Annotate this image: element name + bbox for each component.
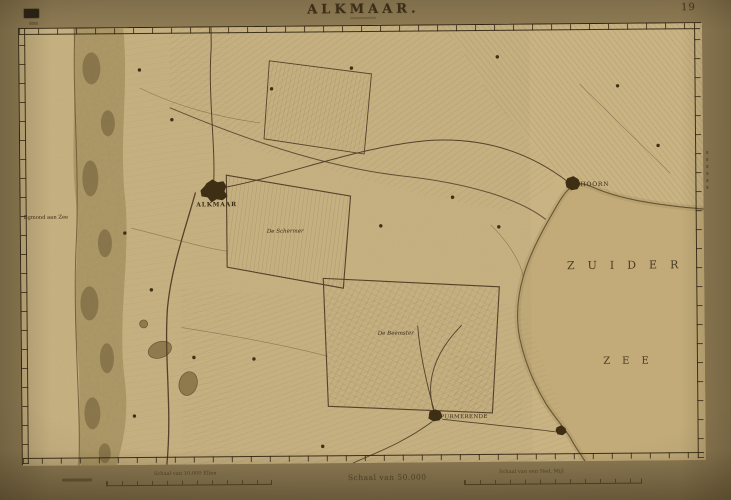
sheet-number: 19 [681, 2, 696, 13]
schermer-label: De Schermer [266, 229, 304, 235]
margin-marks [706, 147, 708, 189]
subtitle-smudge [350, 17, 376, 19]
alkmaar-label: ALKMAAR [195, 201, 237, 208]
map-sheet: ALKMAAR. 19 [0, 0, 731, 500]
map-drawing: ALKMAAR HOORN PURMERENDE Egmond aan Zee … [19, 23, 706, 466]
scale-label-right: Schaal van een Ned. Mijl [499, 468, 564, 475]
scale-bar-right [464, 479, 642, 486]
egmond-label: Egmond aan Zee [24, 215, 68, 221]
purmerende-label: PURMERENDE [440, 414, 487, 420]
illegible-footnote [62, 478, 92, 481]
beemster-label: De Beemster [377, 331, 415, 337]
scale-label-left: Schaal van 10.000 Ellen [154, 470, 217, 476]
zuiderzee-label-line1: ZUIDER [567, 258, 691, 272]
map-frame: ALKMAAR HOORN PURMERENDE Egmond aan Zee … [18, 22, 705, 465]
scale-bar-left [106, 480, 272, 486]
scale-label-center: Schaal van 50.000 [348, 472, 427, 482]
hoorn-label: HOORN [580, 181, 609, 188]
zuiderzee-label-line2: ZEE [603, 355, 661, 367]
photograph-of-antique-map: ALKMAAR. 19 [0, 0, 731, 500]
